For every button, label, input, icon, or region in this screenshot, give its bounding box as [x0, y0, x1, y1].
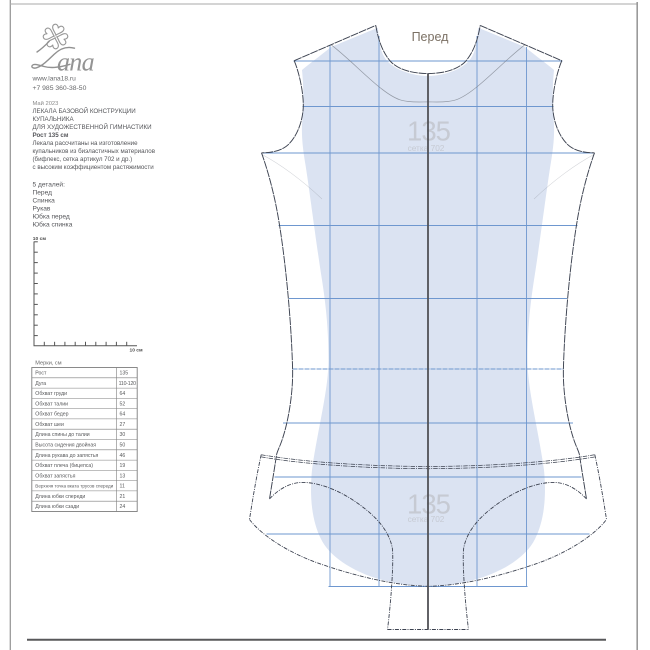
svg-text:Длина юбки сзади: Длина юбки сзади — [35, 504, 79, 510]
svg-text:Длина спины до талии: Длина спины до талии — [35, 432, 89, 438]
svg-text:Обхват запястья: Обхват запястья — [35, 473, 75, 479]
svg-text:Обхват талии: Обхват талии — [35, 401, 68, 407]
svg-text:(бифлекс, сетка артикул 702 и: (бифлекс, сетка артикул 702 и др.) — [33, 156, 133, 163]
svg-text:Мерки, см: Мерки, см — [35, 361, 61, 367]
svg-text:19: 19 — [120, 463, 126, 469]
svg-text:ЛЕКАЛА БАЗОВОЙ КОНСТРУКЦИИ: ЛЕКАЛА БАЗОВОЙ КОНСТРУКЦИИ — [33, 107, 136, 115]
svg-text:Рост: Рост — [35, 371, 47, 377]
svg-text:10 см: 10 см — [130, 348, 144, 354]
svg-text:64: 64 — [120, 391, 126, 397]
svg-text:Спинка: Спинка — [33, 198, 56, 205]
svg-text:www.lana18.ru: www.lana18.ru — [32, 76, 77, 83]
svg-text:Обхват шеи: Обхват шеи — [35, 422, 64, 428]
svg-text:5 деталей:: 5 деталей: — [33, 181, 66, 189]
svg-text:13: 13 — [120, 473, 126, 479]
svg-text:52: 52 — [120, 401, 126, 407]
svg-text:50: 50 — [120, 443, 126, 449]
svg-text:+7 985 360-38-50: +7 985 360-38-50 — [33, 85, 87, 92]
svg-text:Верхняя точка вката трусов спе: Верхняя точка вката трусов спереди — [35, 484, 113, 489]
svg-text:Лекала рассчитаны на изготовле: Лекала рассчитаны на изготовление — [33, 140, 139, 147]
svg-text:Перед: Перед — [33, 190, 53, 197]
svg-text:10 см: 10 см — [33, 236, 47, 242]
svg-text:КУПАЛЬНИКА: КУПАЛЬНИКА — [33, 116, 75, 123]
svg-text:135: 135 — [120, 371, 129, 377]
svg-text:Дуга: Дуга — [35, 381, 46, 387]
svg-text:Май 2023: Май 2023 — [33, 100, 59, 107]
svg-text:21: 21 — [120, 494, 126, 500]
svg-text:Обхват бедер: Обхват бедер — [35, 412, 68, 418]
svg-text:Юбка спинка: Юбка спинка — [33, 221, 73, 229]
svg-text:110-120: 110-120 — [119, 381, 137, 387]
svg-text:Рукав: Рукав — [33, 206, 51, 213]
svg-text:Обхват груди: Обхват груди — [35, 391, 67, 397]
svg-text:Рост 135 см: Рост 135 см — [33, 132, 69, 139]
svg-text:Перед: Перед — [412, 30, 450, 44]
svg-text:ana: ana — [57, 47, 95, 76]
svg-text:46: 46 — [120, 453, 126, 459]
svg-text:ДЛЯ ХУДОЖЕСТВЕННОЙ ГИМНАСТИКИ: ДЛЯ ХУДОЖЕСТВЕННОЙ ГИМНАСТИКИ — [33, 123, 152, 131]
svg-text:11: 11 — [120, 484, 125, 490]
svg-text:купальников из биэластичных ма: купальников из биэластичных материалов — [33, 148, 156, 155]
svg-text:с высоким коэффициентом растяж: с высоким коэффициентом растяжимости — [33, 164, 155, 171]
svg-text:сетка 702: сетка 702 — [408, 514, 445, 524]
svg-text:сетка 702: сетка 702 — [408, 143, 445, 153]
svg-text:30: 30 — [120, 432, 126, 438]
svg-text:Юбка перед: Юбка перед — [33, 213, 70, 221]
svg-text:27: 27 — [120, 422, 126, 428]
svg-text:Высота сидения двойная: Высота сидения двойная — [35, 442, 96, 449]
svg-text:24: 24 — [120, 504, 126, 510]
svg-text:Обхват плеча (бицепса): Обхват плеча (бицепса) — [35, 463, 93, 469]
svg-text:64: 64 — [120, 412, 126, 418]
svg-text:Длина рукава до запястья: Длина рукава до запястья — [35, 453, 98, 459]
svg-text:Длина юбки спереди: Длина юбки спереди — [35, 494, 85, 500]
